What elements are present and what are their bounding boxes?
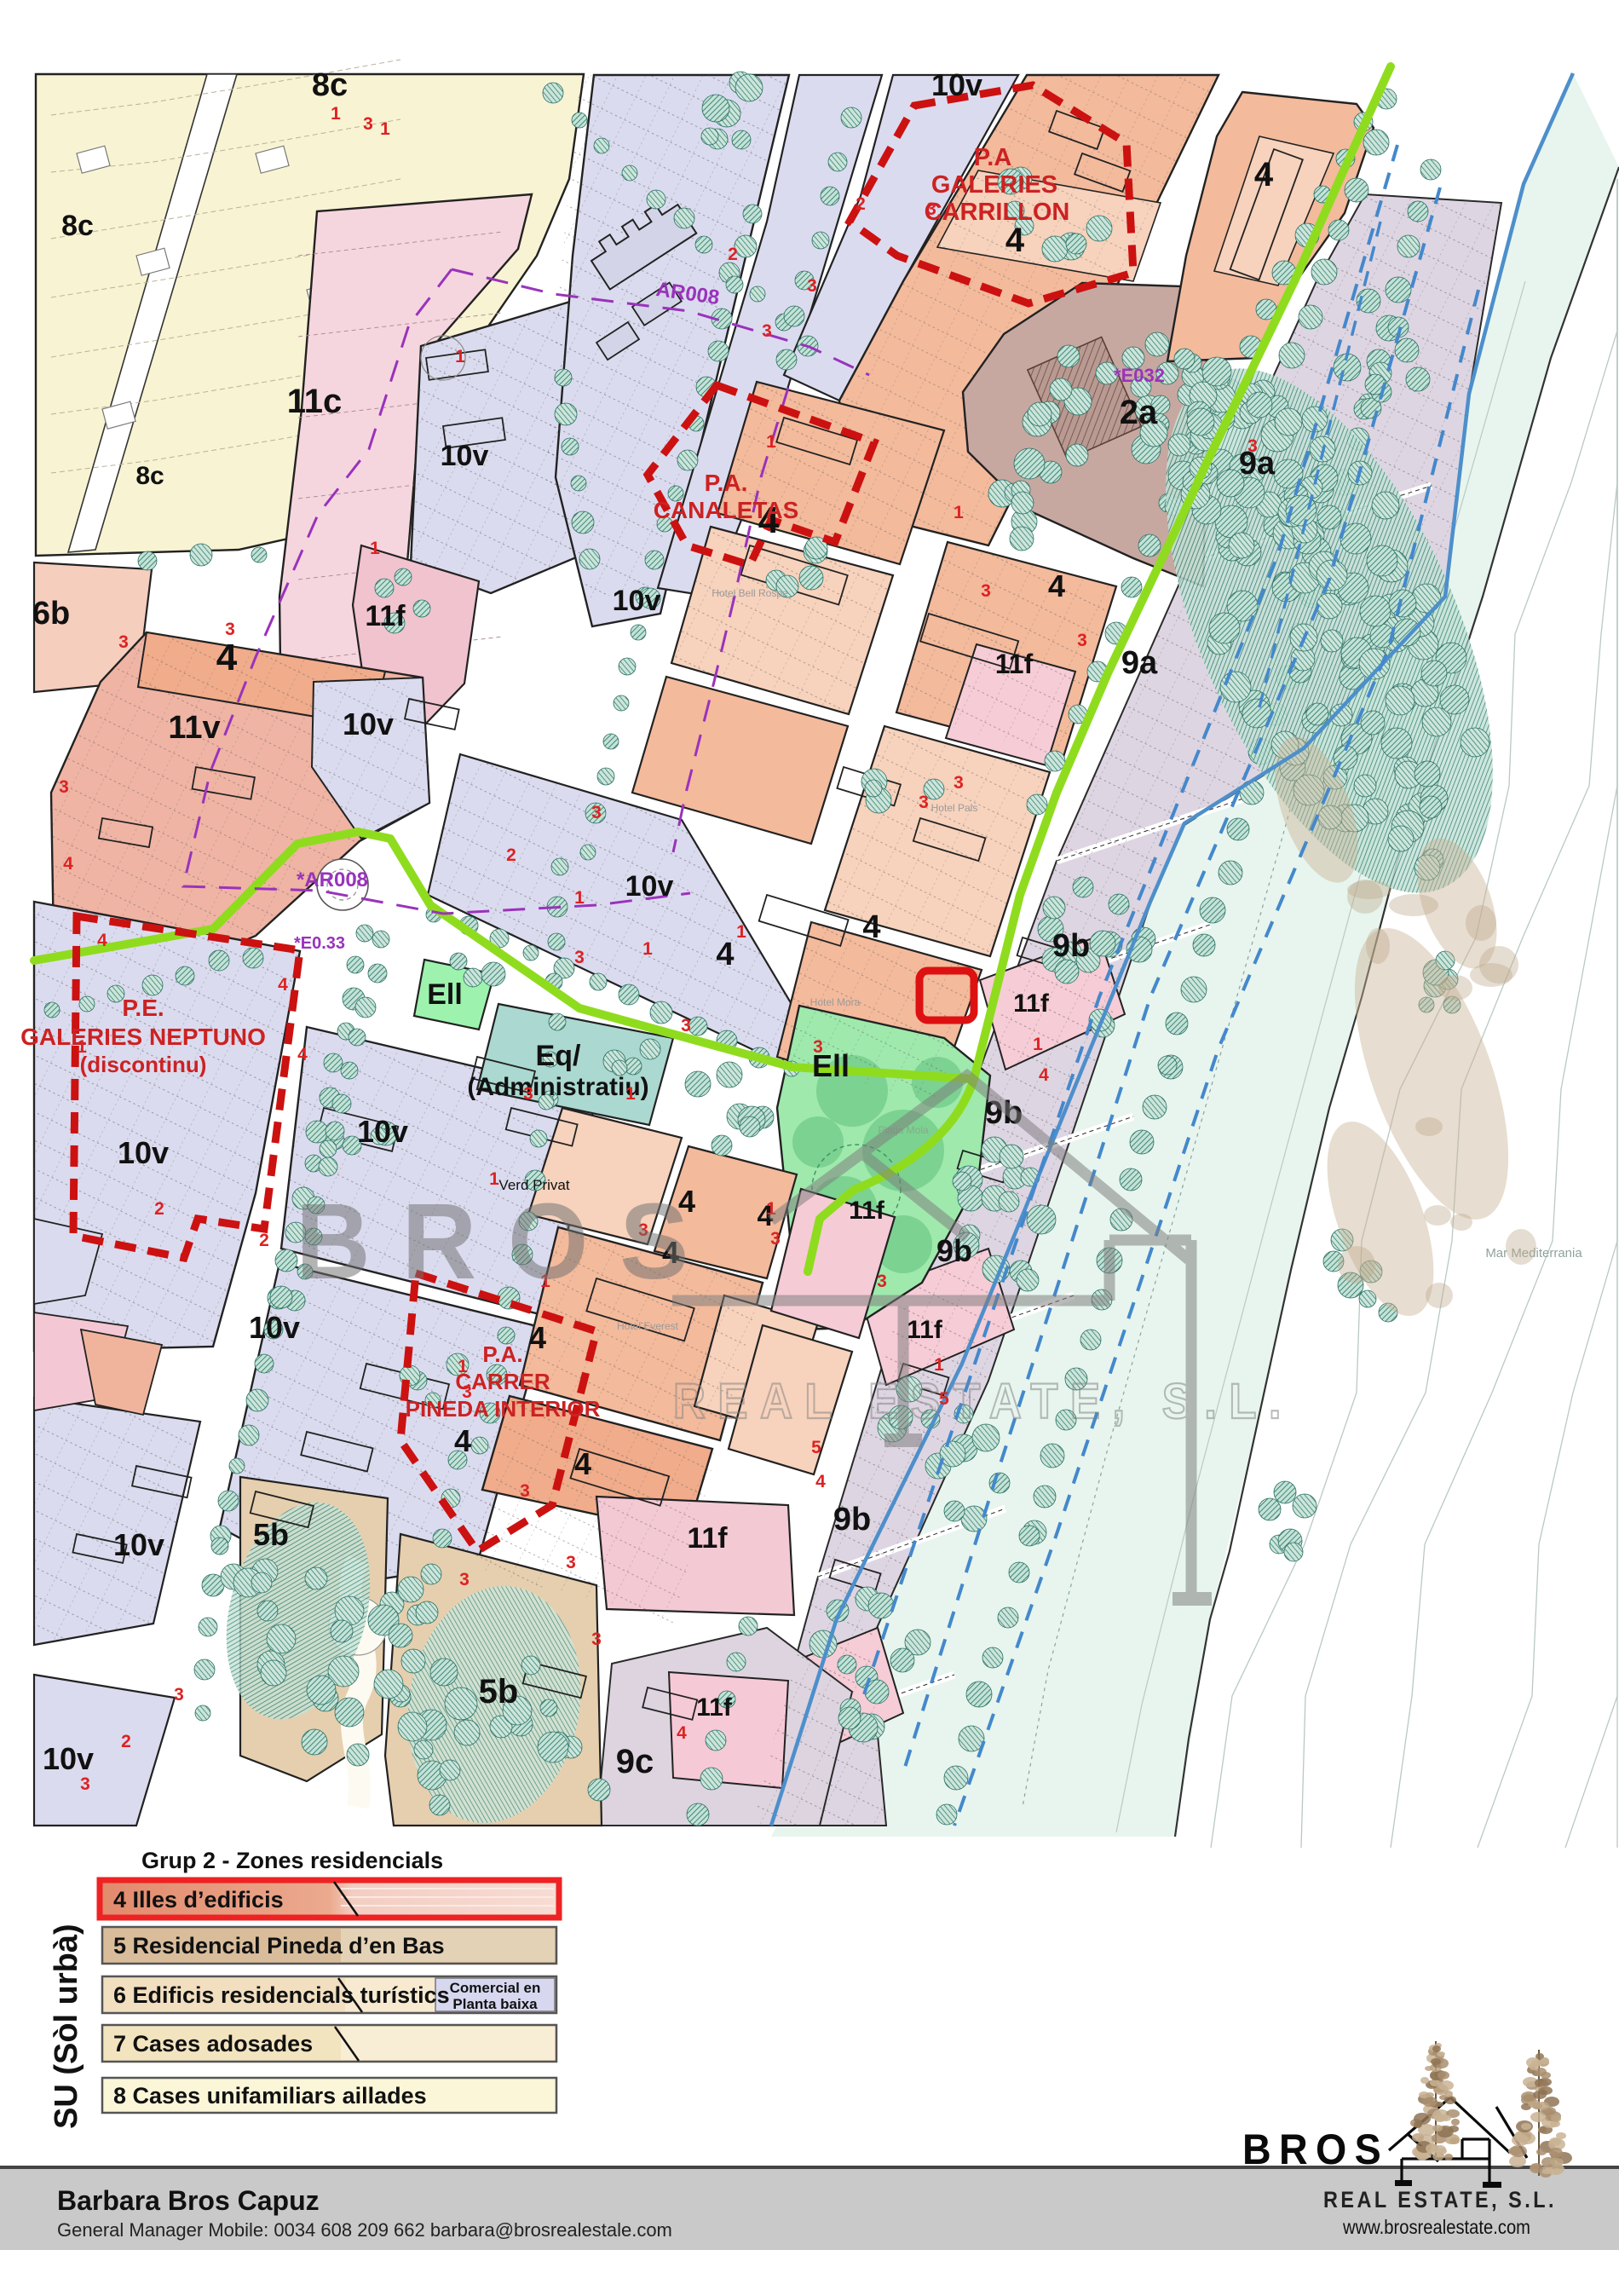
svg-text:(discontinu): (discontinu) xyxy=(80,1052,207,1077)
svg-text:4: 4 xyxy=(862,909,880,945)
svg-text:6b: 6b xyxy=(32,596,70,632)
svg-text:10v: 10v xyxy=(343,707,394,741)
svg-text:4: 4 xyxy=(454,1423,471,1458)
svg-text:3: 3 xyxy=(681,1016,691,1036)
svg-text:3: 3 xyxy=(574,948,585,967)
svg-text:4: 4 xyxy=(1048,568,1065,603)
svg-text:5 Residencial Pineda d’en Bas: 5 Residencial Pineda d’en Bas xyxy=(113,1933,445,1959)
svg-text:9a: 9a xyxy=(1121,645,1158,681)
svg-text:4: 4 xyxy=(574,1446,591,1481)
svg-text:4: 4 xyxy=(216,637,238,678)
svg-text:CARRILLON: CARRILLON xyxy=(925,199,1070,226)
svg-text:9c: 9c xyxy=(616,1743,654,1780)
svg-text:2: 2 xyxy=(259,1231,269,1250)
svg-text:3: 3 xyxy=(462,1382,472,1402)
svg-text:3: 3 xyxy=(80,1774,90,1794)
svg-text:9b: 9b xyxy=(833,1502,871,1537)
svg-text:2a: 2a xyxy=(1120,394,1158,431)
svg-text:General Manager Mobile: 0034: General Manager Mobile: 0034 608 209 662… xyxy=(57,2219,672,2241)
svg-text:4: 4 xyxy=(63,854,73,874)
svg-text:BROS: BROS xyxy=(1242,2126,1389,2173)
svg-text:Grup 2 - Zones residencials: Grup 2 - Zones residencials xyxy=(141,1848,443,1873)
svg-text:3: 3 xyxy=(926,199,936,219)
svg-text:3: 3 xyxy=(1077,631,1087,650)
svg-text:Ell: Ell xyxy=(427,978,463,1011)
svg-text:1: 1 xyxy=(370,539,380,558)
svg-text:10v: 10v xyxy=(625,870,674,903)
svg-text:3: 3 xyxy=(981,581,991,601)
svg-text:GALERIES NEPTUNO: GALERIES NEPTUNO xyxy=(20,1024,266,1050)
svg-text:3: 3 xyxy=(813,1037,823,1057)
svg-text:10v: 10v xyxy=(113,1527,164,1562)
svg-text:2: 2 xyxy=(728,245,738,264)
svg-text:PINEDA INTERIOR: PINEDA INTERIOR xyxy=(406,1396,601,1422)
svg-text:4: 4 xyxy=(716,937,734,972)
svg-text:11f: 11f xyxy=(1013,989,1050,1018)
svg-text:2: 2 xyxy=(506,845,516,865)
svg-text:3: 3 xyxy=(459,1570,470,1589)
svg-text:9b: 9b xyxy=(936,1233,972,1268)
svg-text:3: 3 xyxy=(118,632,129,652)
svg-text:(Administratiu): (Administratiu) xyxy=(467,1073,648,1101)
svg-text:1: 1 xyxy=(934,1355,944,1375)
svg-text:10v: 10v xyxy=(931,67,982,102)
svg-text:4: 4 xyxy=(97,931,107,950)
svg-text:11f: 11f xyxy=(995,649,1034,679)
svg-text:3: 3 xyxy=(591,1630,602,1649)
svg-text:11f: 11f xyxy=(907,1316,943,1344)
svg-text:11v: 11v xyxy=(168,710,220,746)
svg-text:3: 3 xyxy=(566,1553,576,1572)
svg-text:Hotel Everest: Hotel Everest xyxy=(617,1320,679,1332)
svg-text:CANALETAS: CANALETAS xyxy=(654,497,799,523)
svg-text:1: 1 xyxy=(380,119,390,139)
svg-text:5b: 5b xyxy=(479,1673,519,1710)
svg-text:4: 4 xyxy=(1005,222,1025,259)
svg-text:*AR008: *AR008 xyxy=(297,868,368,891)
svg-text:*E032: *E032 xyxy=(1114,365,1165,386)
svg-text:3: 3 xyxy=(877,1272,887,1291)
svg-text:Eq/: Eq/ xyxy=(536,1040,581,1072)
svg-text:SU (Sòl urbà): SU (Sòl urbà) xyxy=(49,1924,84,2129)
svg-text:Hotel Bell Rospe: Hotel Bell Rospe xyxy=(712,587,788,599)
svg-text:1: 1 xyxy=(766,432,776,452)
svg-text:11f: 11f xyxy=(696,1693,733,1722)
svg-text:3: 3 xyxy=(807,276,817,296)
svg-text:4: 4 xyxy=(677,1723,687,1743)
svg-text:7 Cases adosades: 7 Cases adosades xyxy=(113,2031,313,2057)
svg-text:Hotel Pals: Hotel Pals xyxy=(931,802,978,814)
svg-text:3: 3 xyxy=(770,1229,781,1249)
svg-text:1: 1 xyxy=(574,888,585,908)
svg-text:4: 4 xyxy=(529,1320,546,1355)
svg-text:P.E.: P.E. xyxy=(122,995,164,1021)
svg-text:4 Illes d’edificis: 4 Illes d’edificis xyxy=(113,1887,284,1912)
svg-text:9b: 9b xyxy=(1052,928,1090,964)
svg-text:1: 1 xyxy=(642,939,653,959)
svg-text:4: 4 xyxy=(1039,1065,1049,1085)
svg-text:REAL ESTATE, S.L.: REAL ESTATE, S.L. xyxy=(673,1374,1293,1429)
svg-text:11f: 11f xyxy=(687,1522,728,1555)
svg-text:3: 3 xyxy=(520,1481,530,1501)
svg-text:10v: 10v xyxy=(43,1741,94,1776)
svg-text:1: 1 xyxy=(954,503,964,522)
svg-text:5b: 5b xyxy=(253,1517,289,1552)
svg-text:11f: 11f xyxy=(849,1197,885,1225)
svg-text:3: 3 xyxy=(591,803,602,822)
svg-text:4: 4 xyxy=(815,1472,826,1491)
svg-text:1: 1 xyxy=(455,347,465,366)
svg-text:1: 1 xyxy=(625,1084,636,1104)
svg-text:P.A.: P.A. xyxy=(705,470,748,496)
svg-text:1: 1 xyxy=(1033,1035,1043,1054)
svg-text:11c: 11c xyxy=(287,383,343,420)
svg-text:BROS: BROS xyxy=(296,1181,720,1301)
svg-text:11f: 11f xyxy=(365,600,406,632)
svg-text:Hotel Mora: Hotel Mora xyxy=(810,996,861,1008)
svg-text:REAL ESTATE, S.L.: REAL ESTATE, S.L. xyxy=(1323,2187,1557,2212)
svg-text:2: 2 xyxy=(154,1199,164,1219)
svg-text:10v: 10v xyxy=(249,1310,300,1345)
svg-text:2: 2 xyxy=(121,1732,131,1751)
svg-text:2: 2 xyxy=(856,194,866,214)
svg-text:3: 3 xyxy=(225,620,235,639)
svg-text:3: 3 xyxy=(59,777,69,797)
svg-text:5: 5 xyxy=(811,1438,821,1457)
svg-text:4: 4 xyxy=(1254,156,1274,193)
svg-text:3: 3 xyxy=(762,321,772,341)
svg-text:10v: 10v xyxy=(613,585,661,617)
svg-text:4: 4 xyxy=(297,1045,308,1064)
svg-text:3: 3 xyxy=(954,773,964,793)
svg-text:Barbara Bros Capuz: Barbara Bros Capuz xyxy=(57,2185,320,2216)
svg-text:GALERIES: GALERIES xyxy=(931,171,1057,199)
svg-text:3: 3 xyxy=(1247,436,1258,456)
svg-text:Planta baixa: Planta baixa xyxy=(452,1996,538,2012)
svg-text:3: 3 xyxy=(174,1685,184,1705)
svg-text:P.A.: P.A. xyxy=(482,1341,522,1367)
svg-text:1: 1 xyxy=(458,1357,468,1376)
svg-text:1: 1 xyxy=(736,922,746,942)
svg-text:8c: 8c xyxy=(135,462,164,490)
svg-text:8c: 8c xyxy=(312,67,348,103)
svg-text:8c: 8c xyxy=(61,210,94,242)
svg-text:6 Edificis residencials turís: 6 Edificis residencials turístics xyxy=(113,1982,450,2008)
svg-text:3: 3 xyxy=(523,1084,533,1104)
svg-text:10v: 10v xyxy=(357,1114,408,1149)
svg-text:10v: 10v xyxy=(441,440,489,472)
svg-text:1: 1 xyxy=(331,104,341,124)
svg-text:1: 1 xyxy=(77,1037,87,1057)
svg-text:4: 4 xyxy=(278,975,288,995)
svg-text:3: 3 xyxy=(363,114,373,134)
svg-text:10v: 10v xyxy=(118,1135,169,1170)
svg-text:www.brosrealestate.com: www.brosrealestate.com xyxy=(1342,2216,1530,2238)
svg-text:*E0.33: *E0.33 xyxy=(294,934,345,953)
svg-text:P.A: P.A xyxy=(974,144,1012,171)
svg-text:Comercial en: Comercial en xyxy=(450,1980,541,1996)
svg-text:8 Cases unifamiliars aillades: 8 Cases unifamiliars aillades xyxy=(113,2083,427,2109)
svg-text:3: 3 xyxy=(919,793,929,812)
